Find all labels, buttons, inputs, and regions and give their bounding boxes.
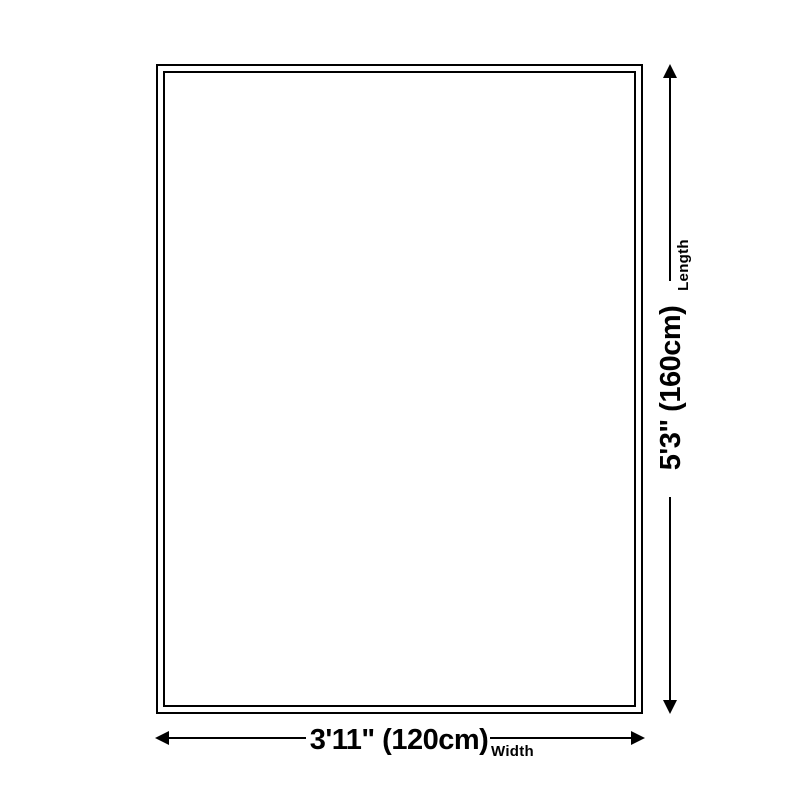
arrow-right-icon bbox=[631, 731, 645, 745]
size-diagram: Length 5'3" (160cm) 3'11" (120cm) Width bbox=[0, 0, 800, 800]
width-label: Width bbox=[491, 744, 551, 760]
length-value: 5'3" (160cm) bbox=[653, 268, 689, 508]
rug-inner-border bbox=[163, 71, 636, 707]
width-line-right-segment bbox=[490, 737, 632, 739]
length-line-upper-segment bbox=[669, 76, 671, 281]
arrow-down-icon bbox=[663, 700, 677, 714]
rug-outline bbox=[156, 64, 643, 714]
arrow-left-icon bbox=[155, 731, 169, 745]
length-line-lower-segment bbox=[669, 497, 671, 700]
